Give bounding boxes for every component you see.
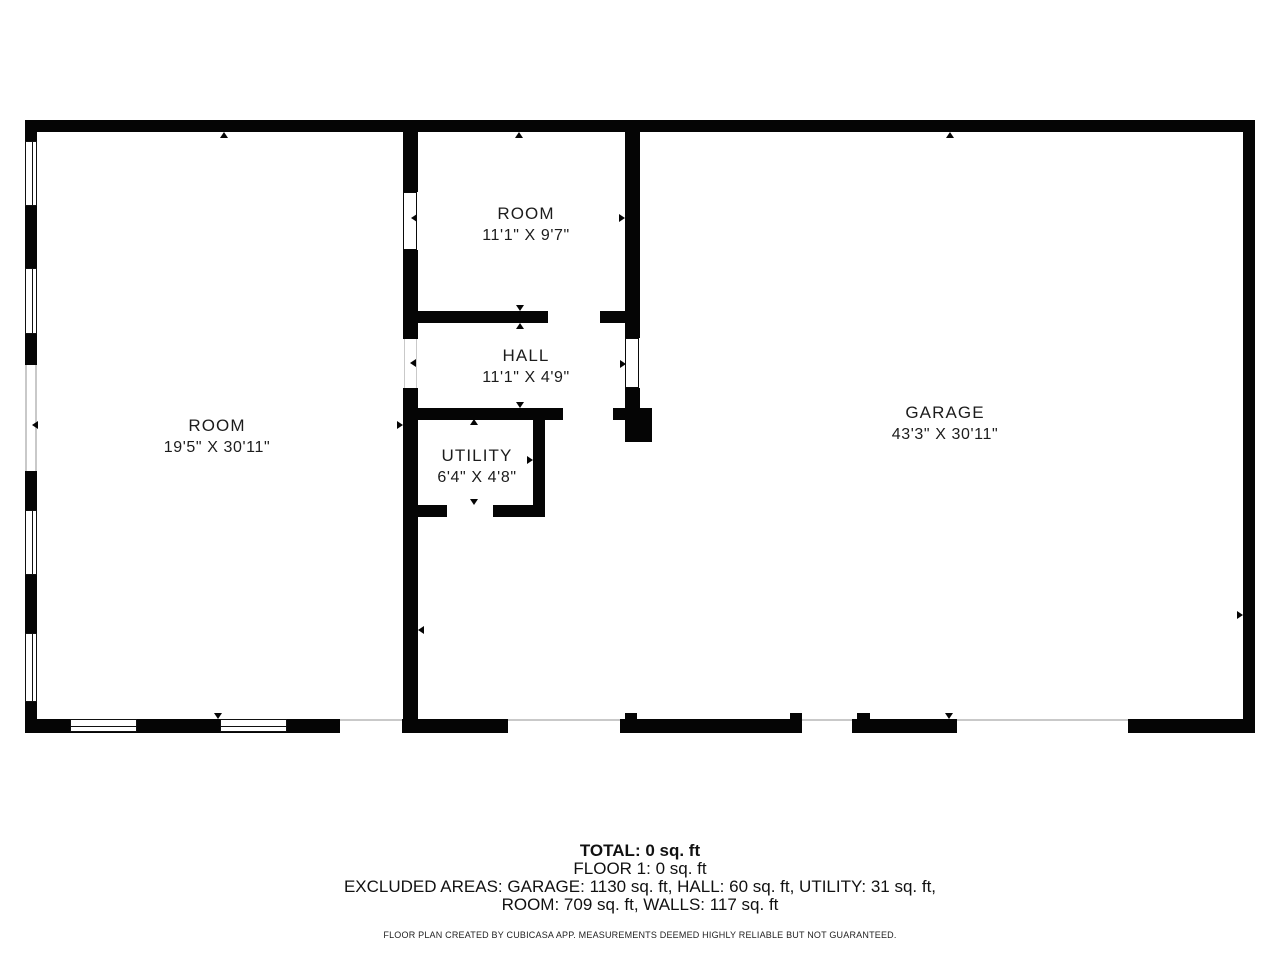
wall-right (1243, 120, 1255, 733)
opening-arrow-icon (619, 214, 625, 222)
wall-top (25, 120, 1255, 132)
room-name: GARAGE (892, 402, 999, 424)
wall-left (25, 471, 37, 510)
room-label-garage: GARAGE 43'3" X 30'11" (892, 402, 999, 445)
room-dimensions: 6'4" X 4'8" (437, 467, 516, 488)
wall-utility-bottom (403, 505, 447, 517)
room-dimensions: 11'1" X 9'7" (482, 225, 570, 246)
opening-line (508, 719, 620, 721)
wall-left (25, 334, 37, 365)
opening-arrow-icon (418, 626, 424, 634)
excluded-areas-text: EXCLUDED AREAS: GARAGE: 1130 sq. ft, HAL… (0, 878, 1280, 896)
wall-bottom (620, 719, 802, 733)
wall-middle (403, 388, 418, 719)
opening-arrow-icon (516, 323, 524, 329)
opening-line (340, 719, 402, 721)
opening-arrow-icon (470, 499, 478, 505)
opening-arrow-icon (32, 421, 38, 429)
wall-left (25, 206, 37, 268)
window-symbol (25, 633, 37, 702)
window-symbol (25, 141, 37, 206)
opening-line (957, 719, 1128, 721)
opening-arrow-icon (220, 132, 228, 138)
room-dimensions: 11'1" X 4'9" (482, 367, 570, 388)
wall-bottom (852, 719, 957, 733)
wall-stub (857, 713, 870, 719)
opening-line (35, 365, 37, 471)
floor-plan: ROOM 19'5" X 30'11" ROOM 11'1" X 9'7" HA… (0, 0, 1280, 960)
wall-utility-bottom (493, 505, 545, 517)
opening-arrow-icon (411, 457, 417, 465)
opening-arrow-icon (397, 421, 403, 429)
door-symbol (625, 338, 639, 388)
room-label-utility: UTILITY 6'4" X 4'8" (437, 445, 516, 488)
window-symbol (70, 719, 137, 732)
opening-line (802, 719, 852, 721)
room-name: ROOM (164, 415, 271, 437)
opening-arrow-icon (1237, 611, 1243, 619)
floor-area-text: FLOOR 1: 0 sq. ft (0, 860, 1280, 878)
window-symbol (25, 510, 37, 575)
wall-hall-bottom (613, 408, 640, 420)
opening-arrow-icon (410, 359, 416, 367)
room-name: ROOM (482, 203, 570, 225)
room-name: HALL (482, 345, 570, 367)
total-area-text: TOTAL: 0 sq. ft (0, 842, 1280, 860)
opening-arrow-icon (516, 402, 524, 408)
wall-bottom (1128, 719, 1255, 733)
opening-arrow-icon (411, 214, 417, 222)
opening-arrow-icon (945, 713, 953, 719)
wall-stub (625, 713, 637, 719)
wall-hall-top (403, 311, 548, 323)
opening-line (404, 339, 405, 388)
opening-arrow-icon (214, 713, 222, 719)
opening-line (25, 365, 27, 471)
area-summary: TOTAL: 0 sq. ft FLOOR 1: 0 sq. ft EXCLUD… (0, 842, 1280, 941)
disclaimer-text: FLOOR PLAN CREATED BY CUBICASA APP. MEAS… (0, 930, 1280, 941)
opening-arrow-icon (515, 132, 523, 138)
room-dimensions: 19'5" X 30'11" (164, 437, 271, 458)
window-symbol (220, 719, 287, 732)
room-label-left-room: ROOM 19'5" X 30'11" (164, 415, 271, 458)
excluded-areas-text: ROOM: 709 sq. ft, WALLS: 117 sq. ft (0, 896, 1280, 914)
wall-left (25, 120, 37, 141)
room-name: UTILITY (437, 445, 516, 467)
wall-utility-right (533, 408, 545, 517)
room-label-hall: HALL 11'1" X 4'9" (482, 345, 570, 388)
wall-stub (790, 713, 802, 719)
opening-arrow-icon (527, 456, 533, 464)
opening-arrow-icon (470, 419, 478, 425)
wall-middle (403, 250, 418, 339)
wall-left (25, 575, 37, 633)
wall-middle (403, 132, 418, 192)
wall-hall-top (600, 311, 640, 323)
window-symbol (25, 268, 37, 334)
opening-arrow-icon (516, 305, 524, 311)
wall-garage-left (625, 132, 640, 338)
opening-line (416, 339, 417, 388)
room-label-mid-room: ROOM 11'1" X 9'7" (482, 203, 570, 246)
wall-bottom (402, 719, 508, 733)
room-dimensions: 43'3" X 30'11" (892, 424, 999, 445)
opening-arrow-icon (946, 132, 954, 138)
opening-arrow-icon (620, 360, 626, 368)
